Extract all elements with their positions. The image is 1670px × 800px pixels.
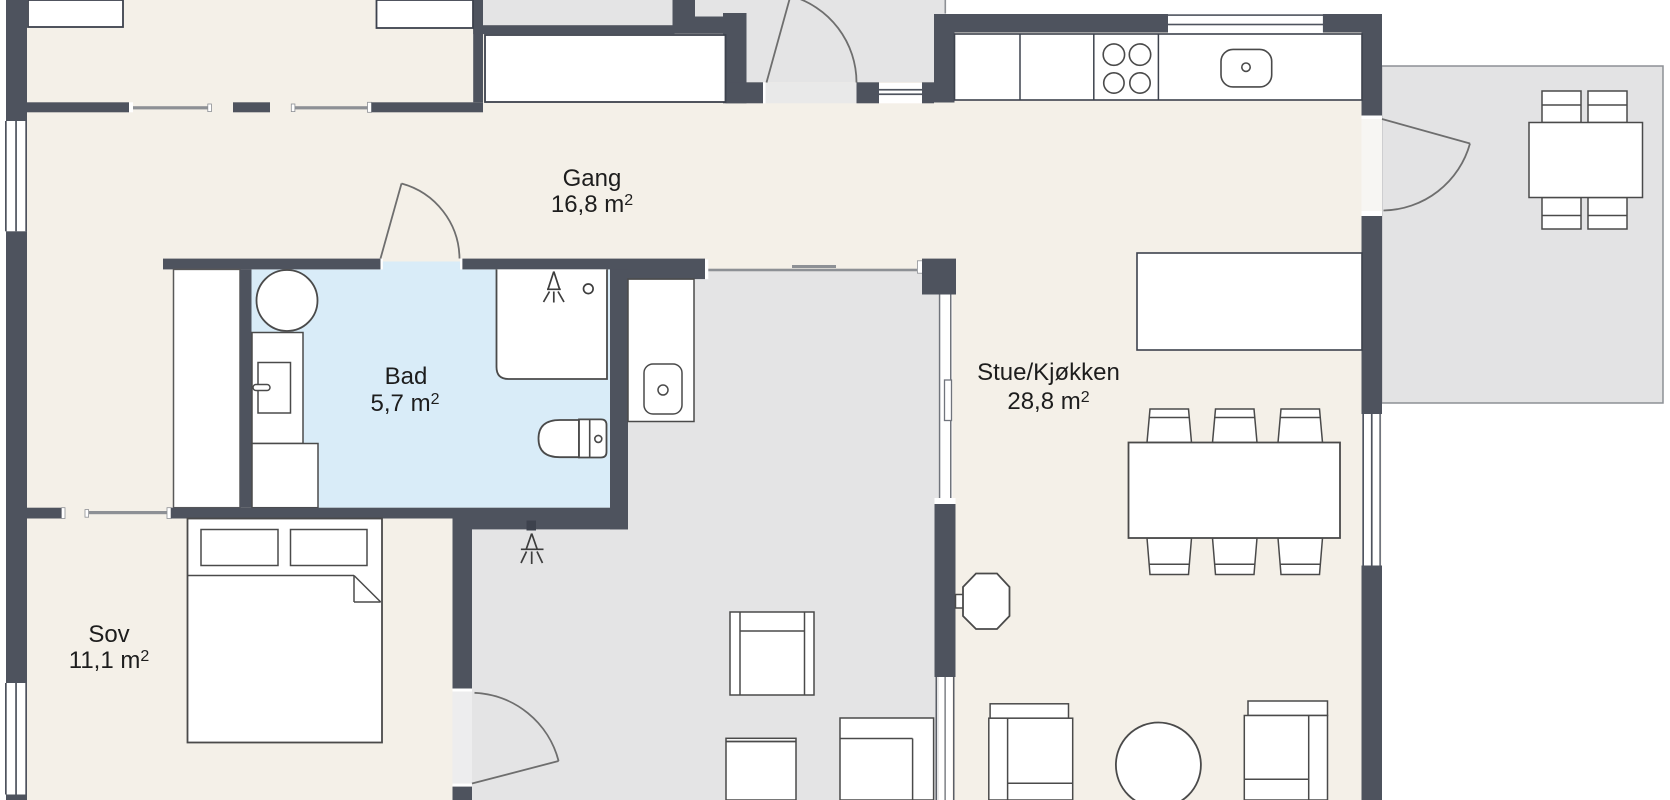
svg-text:Sov: Sov xyxy=(88,621,129,648)
svg-text:Bad: Bad xyxy=(385,363,428,390)
svg-text:Stue/Kjøkken: Stue/Kjøkken xyxy=(977,359,1120,386)
svg-text:28,8 m2: 28,8 m2 xyxy=(1007,388,1089,415)
svg-text:5,7 m2: 5,7 m2 xyxy=(371,390,440,417)
svg-text:11,1 m2: 11,1 m2 xyxy=(69,647,150,674)
svg-text:Gang: Gang xyxy=(563,165,622,192)
svg-text:16,8 m2: 16,8 m2 xyxy=(551,191,633,218)
